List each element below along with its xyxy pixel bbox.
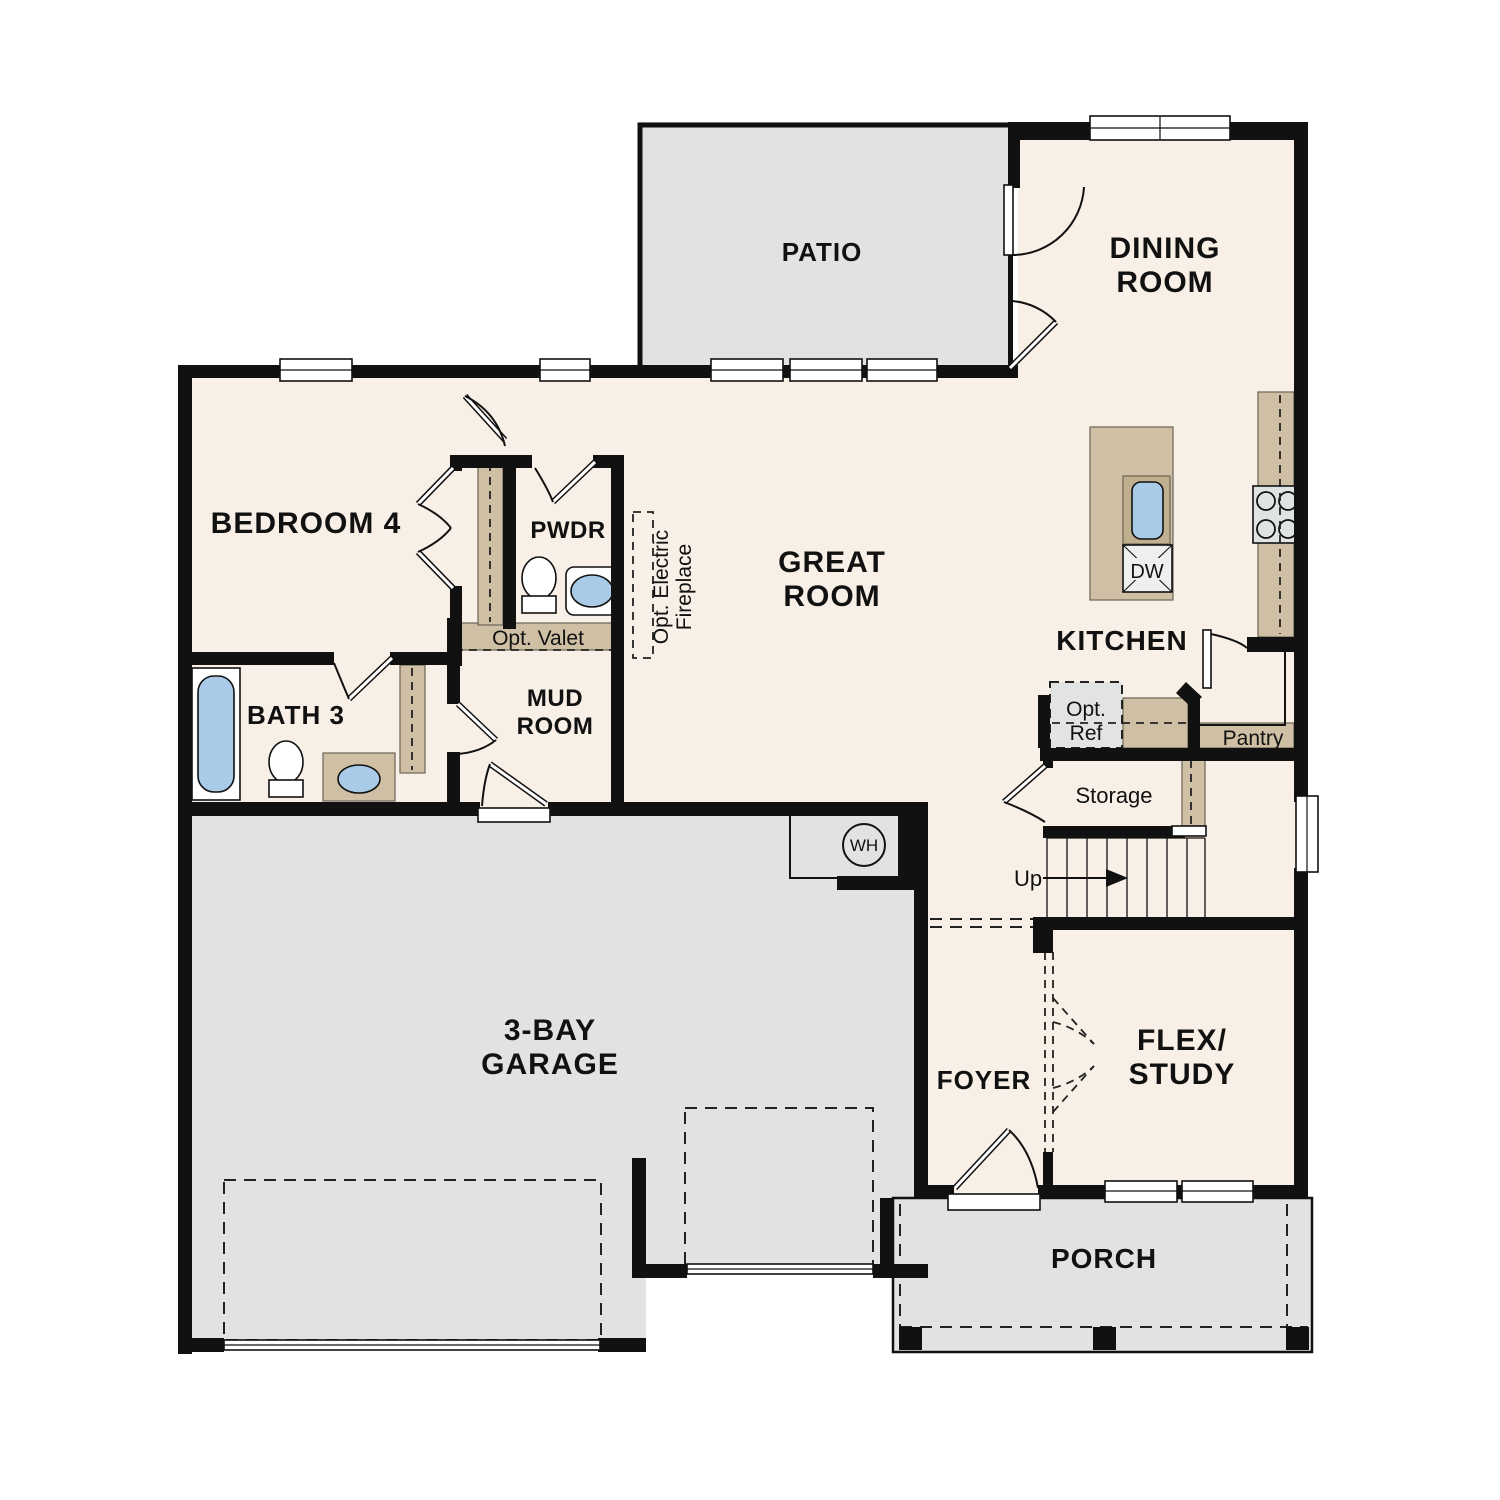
room-label-mud-line1: MUD (527, 685, 583, 712)
bathtub-icon (192, 668, 240, 800)
bedroom4-window-2 (540, 359, 590, 381)
room-label-bath3: BATH 3 (247, 700, 345, 730)
label-storage: Storage (1075, 783, 1152, 808)
room-label-foyer: FOYER (937, 1065, 1032, 1095)
great-room-window-1 (711, 359, 783, 381)
room-label-bedroom4: BEDROOM 4 (211, 507, 402, 540)
pwdr-sink-icon (566, 567, 618, 615)
bath3-sink-icon (338, 765, 380, 793)
stair-landing-edge (1172, 826, 1206, 836)
label-opt-valet: Opt. Valet (492, 627, 584, 650)
garage-door-right (687, 1264, 873, 1274)
floor-plan-drawing: DW Opt. Ref (0, 0, 1500, 1500)
room-label-mud-line2: ROOM (517, 713, 594, 740)
garage-door-left (224, 1340, 600, 1350)
label-up: Up (1014, 866, 1042, 891)
room-label-kitchen: KITCHEN (1056, 625, 1187, 656)
opt-ref-label-line1: Opt. (1066, 698, 1106, 721)
room-label-great-line1: GREAT (778, 546, 886, 579)
room-label-flex-line2: STUDY (1129, 1058, 1236, 1091)
great-room-window-3 (867, 359, 937, 381)
dishwasher-icon: DW (1123, 545, 1172, 592)
bath3-toilet-icon (269, 741, 303, 797)
room-label-garage-line1: 3-BAY (504, 1014, 596, 1047)
kitchen-sink-icon (1132, 482, 1163, 539)
bedroom4-window-1 (280, 359, 352, 381)
room-label-patio: PATIO (782, 237, 863, 267)
dining-window (1090, 116, 1230, 140)
pwdr-toilet-icon (522, 557, 556, 613)
optional-refrigerator: Opt. Ref (1050, 682, 1122, 748)
great-room-window-2 (790, 359, 862, 381)
water-heater-label: WH (850, 836, 878, 855)
floor-plan: DW Opt. Ref (0, 0, 1500, 1500)
room-label-dining-line2: ROOM (1116, 266, 1213, 299)
label-opt-electric-fireplace-line1: Opt. Electric (650, 530, 673, 644)
label-pantry: Pantry (1223, 727, 1284, 750)
room-label-garage-line2: GARAGE (481, 1048, 619, 1081)
stair-hall-window (1296, 796, 1318, 872)
dishwasher-label: DW (1130, 561, 1163, 583)
room-label-flex-line1: FLEX/ (1137, 1024, 1227, 1057)
label-opt-electric-fireplace-line2: Fireplace (673, 544, 696, 630)
room-label-dining-line1: DINING (1110, 232, 1221, 265)
front-door-threshold (948, 1194, 1040, 1210)
flex-window-1 (1105, 1181, 1177, 1202)
room-label-pwdr: PWDR (530, 517, 605, 544)
stair-chase (1182, 758, 1205, 828)
room-label-porch: PORCH (1051, 1243, 1157, 1274)
stove-icon (1253, 486, 1300, 543)
opt-ref-label-line2: Ref (1070, 722, 1103, 745)
mudroom-garage-threshold (478, 808, 550, 822)
room-label-great-line2: ROOM (783, 580, 880, 613)
flex-window-2 (1182, 1181, 1253, 1202)
